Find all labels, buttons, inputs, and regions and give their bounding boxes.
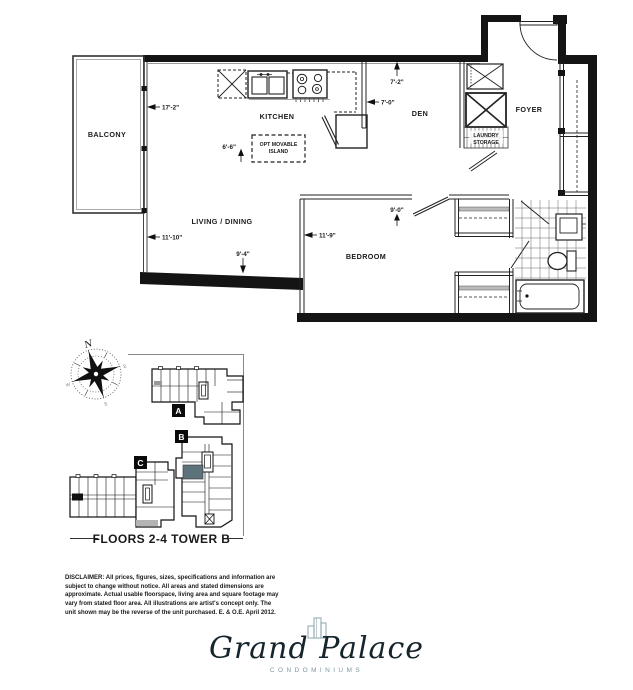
unit-plan: BALCONY KITCHEN DEN FOYER LIVING / DININ… bbox=[73, 15, 597, 322]
compass-north-label: N bbox=[82, 339, 95, 352]
interior-walls bbox=[300, 62, 588, 313]
compass-west-label: W bbox=[65, 381, 71, 387]
tower-b-footprint bbox=[176, 437, 232, 527]
dim-7-2: 7'-2" bbox=[390, 79, 404, 86]
brand-name: Grand Palace bbox=[0, 632, 633, 665]
brand-logo: Grand Palace CONDOMINIUMS bbox=[0, 616, 633, 674]
bathroom bbox=[510, 199, 587, 313]
island-label-line2: ISLAND bbox=[269, 149, 289, 155]
closet-door bbox=[469, 151, 495, 169]
dim-9-4: 9'-4" bbox=[236, 251, 250, 258]
dim-11-10: 11'-10" bbox=[162, 235, 182, 242]
exterior-walls bbox=[140, 15, 597, 322]
upper-cabinet-box bbox=[218, 70, 246, 98]
keyplan: N W S E A bbox=[55, 331, 244, 546]
foyer-label: FOYER bbox=[516, 105, 543, 114]
balcony-label: BALCONY bbox=[88, 130, 126, 139]
keyplan-caption: FLOORS 2-4 TOWER B bbox=[93, 532, 231, 546]
laundry-storage bbox=[464, 64, 508, 171]
dim-7-0: 7'-0" bbox=[381, 100, 395, 107]
dim-17-2: 17'-2" bbox=[162, 105, 179, 112]
kitchen-label: KITCHEN bbox=[260, 112, 295, 121]
tower-a-letter: A bbox=[175, 406, 181, 416]
bath-entry-door bbox=[521, 201, 549, 224]
dim-9-0: 9'-0" bbox=[390, 207, 404, 214]
tower-a-footprint bbox=[152, 367, 243, 425]
laundry-label-line2: STORAGE bbox=[473, 140, 499, 146]
highlighted-unit bbox=[183, 465, 203, 479]
den-label: DEN bbox=[412, 109, 428, 118]
bath-sink bbox=[556, 214, 586, 240]
island-label-line1: OPT MOVABLE bbox=[260, 142, 298, 148]
dim-6-6: 6'-6" bbox=[222, 144, 236, 151]
fridge bbox=[322, 115, 367, 148]
laundry-label-line1: LAUNDRY bbox=[473, 133, 499, 139]
toilet bbox=[548, 251, 576, 271]
floorplan-sheet: BALCONY KITCHEN DEN FOYER LIVING / DININ… bbox=[0, 0, 633, 690]
kitchen-sink bbox=[248, 71, 287, 98]
compass-rose: N W S E bbox=[55, 331, 137, 416]
tower-c-footprint bbox=[70, 462, 174, 527]
dim-11-9: 11'-9" bbox=[319, 233, 336, 240]
compass-east-label: E bbox=[123, 363, 127, 369]
range-cooktop bbox=[293, 70, 327, 98]
bedroom-label: BEDROOM bbox=[346, 252, 386, 261]
entry-door bbox=[520, 22, 557, 61]
compass-south-label: S bbox=[104, 401, 108, 407]
bathtub bbox=[516, 280, 584, 313]
brand-tagline: CONDOMINIUMS bbox=[0, 667, 633, 674]
disclaimer-text: DISCLAIMER: All prices, figures, sizes, … bbox=[65, 574, 283, 617]
tower-c-letter: C bbox=[137, 458, 143, 468]
bathroom-door bbox=[511, 241, 529, 268]
tower-b-letter: B bbox=[178, 432, 184, 442]
bedroom-closet bbox=[455, 199, 513, 313]
living-dining-label: LIVING / DINING bbox=[191, 217, 252, 226]
